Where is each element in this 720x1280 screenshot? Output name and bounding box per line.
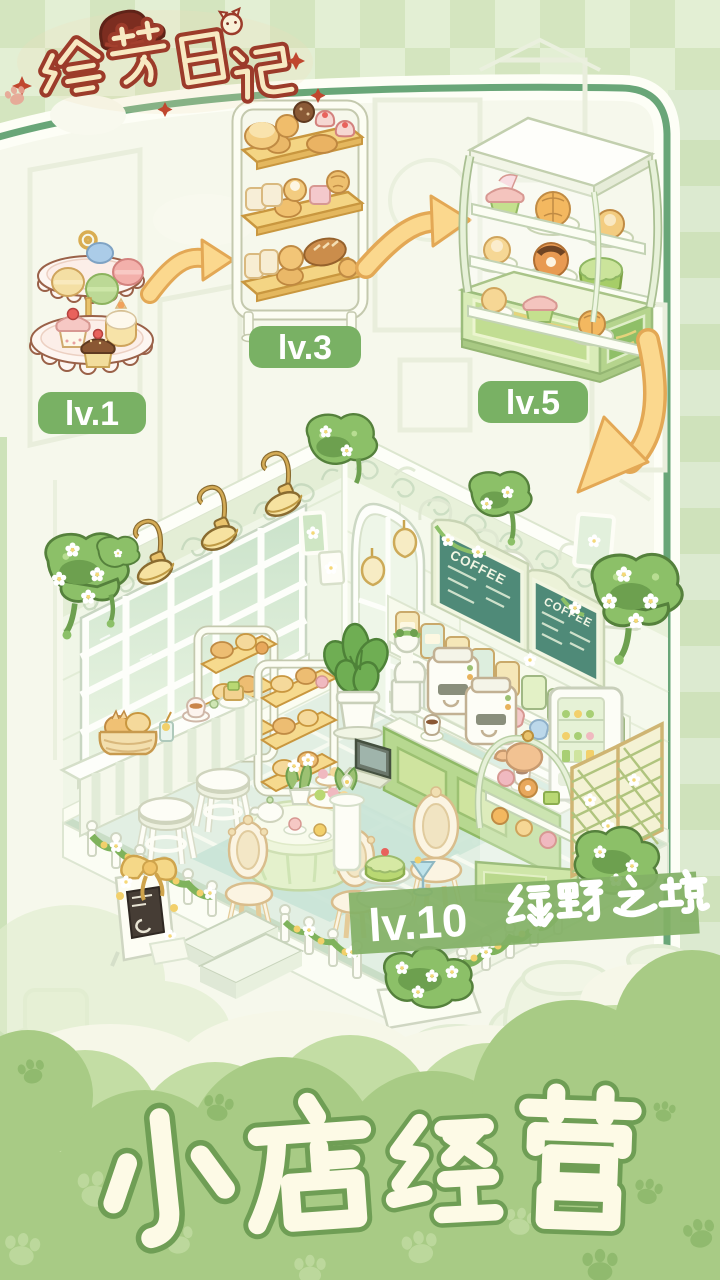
svg-text:lv.1: lv.1 [65, 395, 119, 433]
svg-text:lv.10: lv.10 [367, 894, 469, 952]
svg-text:lv.3: lv.3 [278, 329, 332, 367]
svg-text:lv.5: lv.5 [506, 384, 560, 422]
